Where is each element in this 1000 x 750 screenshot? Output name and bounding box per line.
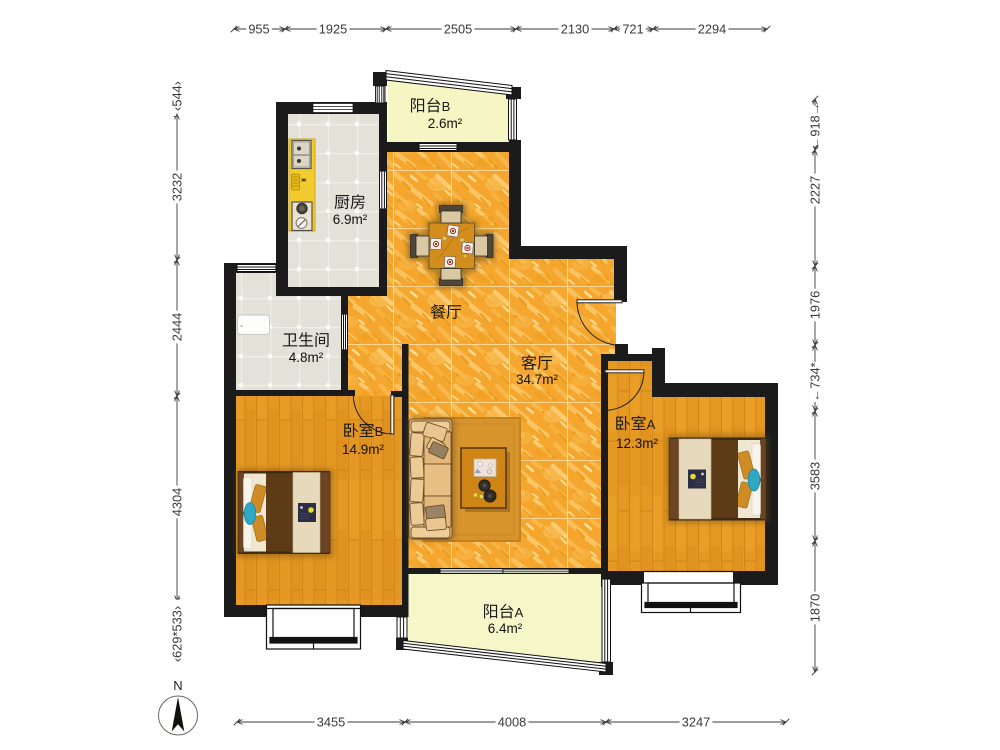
svg-text:6.9m²: 6.9m² xyxy=(333,212,368,227)
svg-text:2.6m²: 2.6m² xyxy=(428,116,463,131)
svg-text:2444: 2444 xyxy=(170,313,185,341)
svg-text:2294: 2294 xyxy=(698,21,726,36)
svg-text:12.3m²: 12.3m² xyxy=(616,436,659,451)
svg-text:1870: 1870 xyxy=(808,594,823,622)
svg-text:4008: 4008 xyxy=(498,714,526,729)
svg-text:1925: 1925 xyxy=(319,21,347,36)
svg-text:6.4m²: 6.4m² xyxy=(488,621,523,636)
svg-text:2227: 2227 xyxy=(808,176,823,204)
svg-text:‹629*533›: ‹629*533› xyxy=(170,606,185,662)
svg-text:34.7m²: 34.7m² xyxy=(516,372,559,387)
svg-text:A: A xyxy=(515,605,524,620)
svg-text:3583: 3583 xyxy=(808,462,823,490)
svg-text:‹544›: ‹544› xyxy=(170,81,185,111)
svg-text:B: B xyxy=(442,99,451,114)
svg-text:721: 721 xyxy=(622,21,643,36)
svg-text:3455: 3455 xyxy=(317,714,345,729)
svg-text:4304: 4304 xyxy=(170,488,185,516)
svg-text:3247: 3247 xyxy=(682,714,710,729)
svg-text:A: A xyxy=(647,417,656,432)
svg-text:B: B xyxy=(375,424,384,439)
svg-text:1976: 1976 xyxy=(808,291,823,319)
svg-text:4.8m²: 4.8m² xyxy=(289,350,324,365)
svg-text:N: N xyxy=(173,678,182,693)
svg-text:955: 955 xyxy=(248,21,269,36)
svg-text:3232: 3232 xyxy=(170,173,185,201)
svg-text:2505: 2505 xyxy=(444,21,472,36)
svg-text:←734*: ←734* xyxy=(808,362,823,401)
svg-text:←918→: ←918→ xyxy=(808,103,823,150)
svg-text:2130: 2130 xyxy=(561,21,589,36)
svg-text:14.9m²: 14.9m² xyxy=(342,442,385,457)
